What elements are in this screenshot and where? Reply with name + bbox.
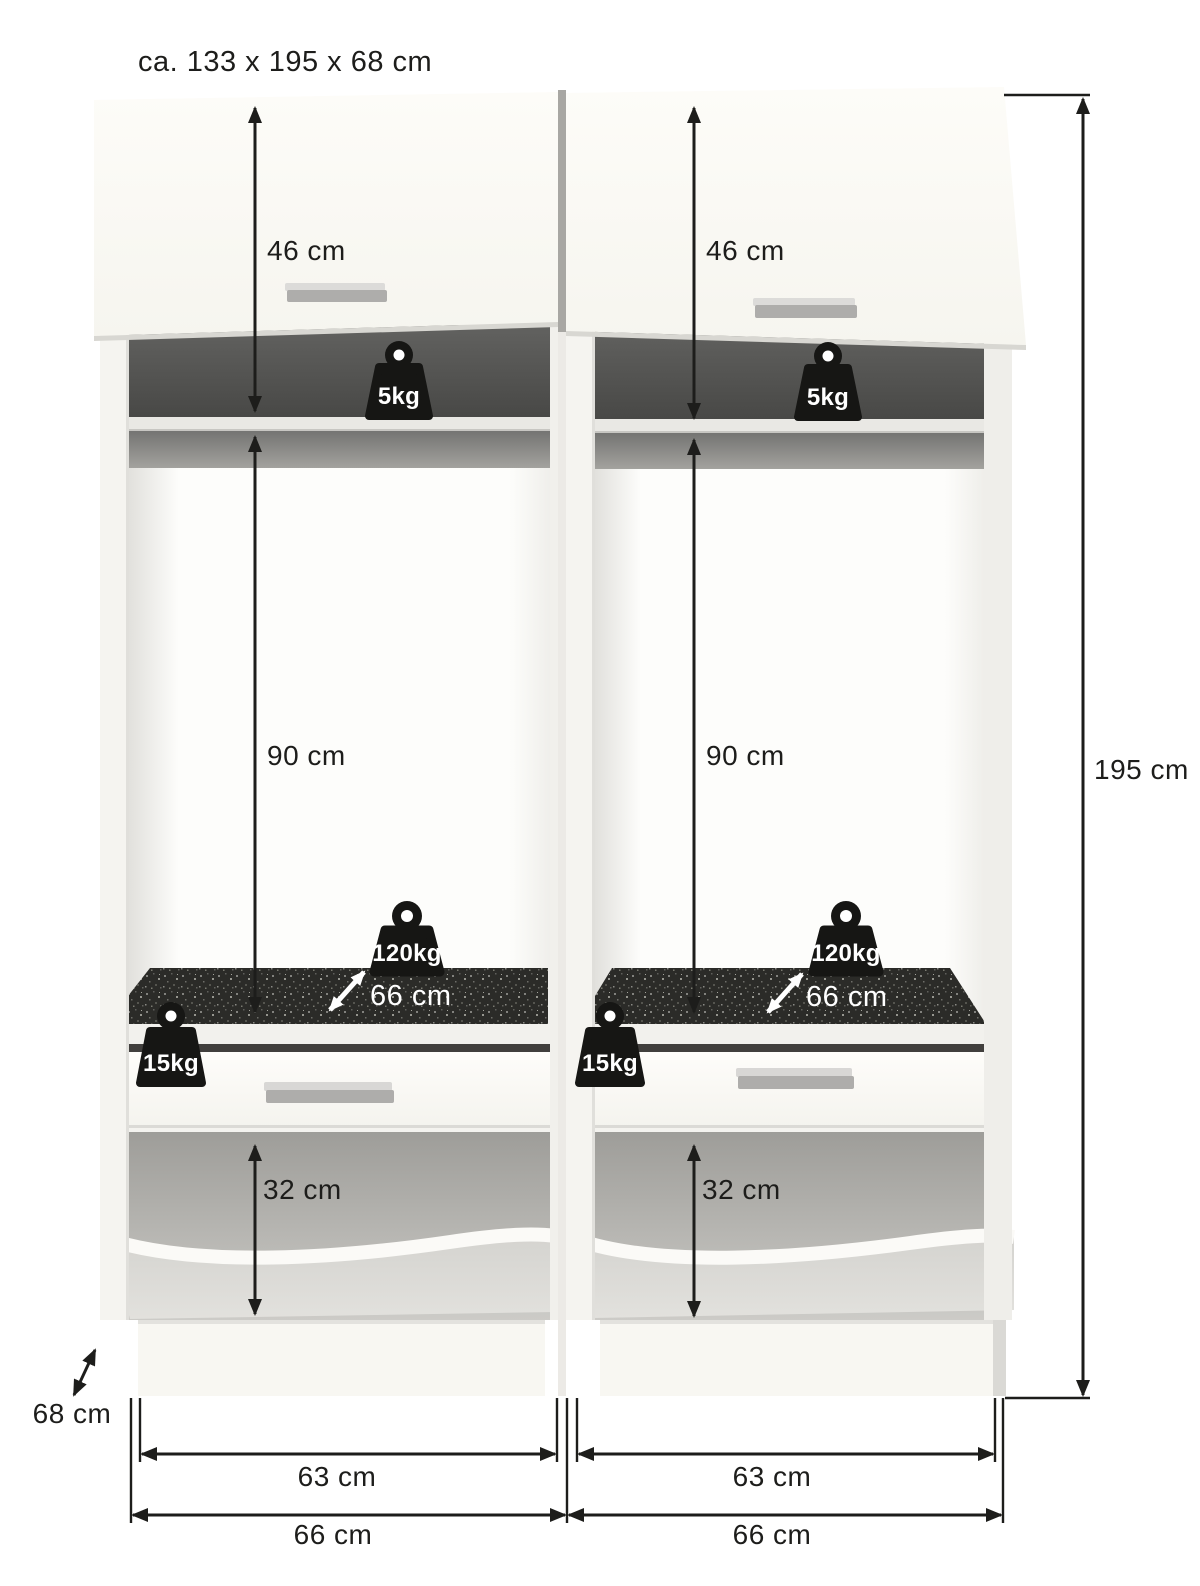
product-dimension-diagram: 5kg 120kg 15kg 66 cm [0,0,1200,1586]
dim-total-height: 195 cm [1004,95,1189,1398]
svg-text:32 cm: 32 cm [263,1174,342,1205]
right-shelf-load-label: 5kg [807,384,849,411]
right-platform-load-label: 120kg [811,940,881,967]
svg-text:46 cm: 46 cm [267,235,346,266]
left-niche-soffit [128,431,552,468]
dim-right-inner-width: 63 cm [579,1454,993,1492]
left-flap-door [94,92,558,341]
page-title: ca. 133 x 195 x 68 cm [138,46,432,78]
svg-text:90 cm: 90 cm [267,740,346,771]
svg-text:63 cm: 63 cm [298,1461,377,1492]
unit-junction [558,332,566,1396]
right-drawer-handle [736,1068,854,1089]
right-platform-depth-label: 66 cm [806,981,887,1013]
right-unit: 5kg 120kg 15kg 66 cm [566,87,1026,1396]
dim-left-inner-width: 63 cm [142,1454,555,1492]
right-flap-door [566,87,1026,350]
right-open-niche [594,469,984,1024]
right-top-shelf [594,419,984,431]
width-extension-lines [131,1398,1003,1523]
right-plinth [600,1320,993,1396]
dim-right-outer-width: 66 cm [569,1515,1001,1550]
left-top-niche [128,325,552,417]
left-plinth [138,1320,545,1396]
dim-total-depth: 68 cm [33,1350,112,1429]
svg-text:46 cm: 46 cm [706,235,785,266]
right-flap-handle [753,298,857,318]
svg-text:66 cm: 66 cm [733,1519,812,1550]
left-drawer-handle [264,1082,394,1103]
left-top-shelf [128,417,552,429]
left-platform-load-label: 120kg [372,940,442,967]
right-drawer-load-label: 15kg [582,1050,638,1077]
left-flap-handle [285,283,387,302]
left-side-frame [100,320,128,1320]
right-side-frame-left [566,318,594,1320]
unit-junction-top [558,90,566,332]
svg-text:66 cm: 66 cm [294,1519,373,1550]
left-drawer-load-label: 15kg [143,1050,199,1077]
right-bin-flap [578,1236,1014,1318]
dim-left-outer-width: 66 cm [133,1515,565,1550]
right-side-frame-right [984,325,1012,1320]
svg-text:90 cm: 90 cm [706,740,785,771]
svg-text:32 cm: 32 cm [702,1174,781,1205]
svg-text:63 cm: 63 cm [733,1461,812,1492]
svg-text:195 cm: 195 cm [1094,754,1189,785]
svg-text:68 cm: 68 cm [33,1398,112,1429]
left-platform-depth-label: 66 cm [370,980,451,1012]
right-niche-soffit [594,433,984,469]
left-shelf-load-label: 5kg [378,383,420,410]
